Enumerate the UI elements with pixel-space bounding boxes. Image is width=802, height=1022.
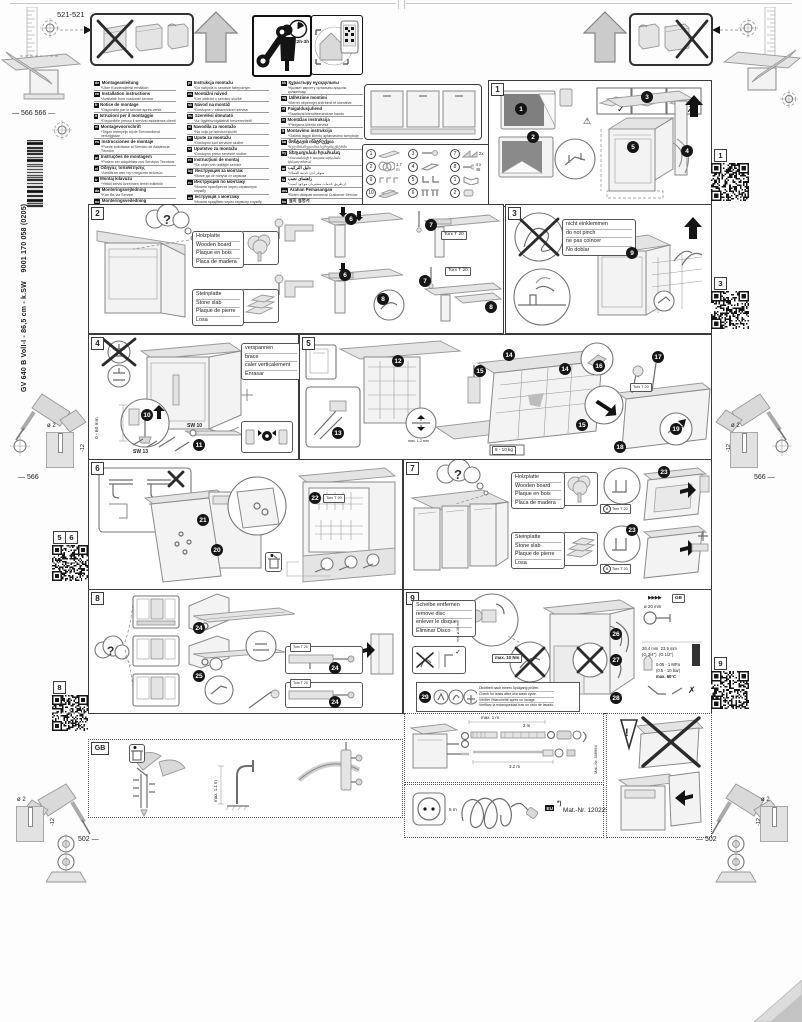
- parts-col-3: 72x 84 x 45 1 2: [450, 147, 486, 205]
- language-note: *Se obţin prin unităţile service: [194, 163, 269, 167]
- panel-4: 4 verspannen brace caler verticalement E…: [88, 334, 299, 460]
- cross-mark: ✗: [688, 686, 696, 696]
- order-number: 9001 170 058 (0205): [21, 204, 28, 273]
- rail-part-icon: [378, 149, 400, 158]
- language-entry: csMontážní návod *Lze obdržet v servisní…: [187, 91, 269, 102]
- do-not-pinch-labels: nicht einklemmen do not pinch ne pas coi…: [562, 219, 636, 256]
- step-badge-20: 20: [211, 544, 223, 556]
- language-title: Montážní návod: [195, 92, 227, 97]
- language-note: *Disponible par le service après-vente: [101, 108, 176, 112]
- language-code-badge: hr: [187, 136, 193, 141]
- install-time-label: <2h-3h: [294, 39, 309, 44]
- screw-part-icon: [420, 149, 440, 158]
- label-es: Enrasar: [245, 371, 297, 379]
- torx-note: 8 Torx T 20: [600, 564, 631, 574]
- language-title: Szerelési útmutató: [195, 114, 233, 119]
- language-note: *Pieejama klientu servisā: [288, 123, 363, 127]
- language-code-badge: de: [94, 81, 100, 86]
- gb-panel-label: GB: [91, 742, 109, 755]
- label-es: Placa de madera: [196, 259, 240, 267]
- min-diameter-label: min. ø 16 mm: [456, 620, 460, 642]
- language-note: *ხელმისაწვდომია სერვისცენტრში: [288, 145, 363, 149]
- language-title: Uputstvo za montažu: [194, 147, 237, 152]
- step-badge-14b: 14: [559, 363, 571, 375]
- page-edge-line: [406, 3, 792, 4]
- gb-panel: GB max. 1.1 m: [88, 739, 403, 818]
- panel-2: 2 ? Holzplatte Wooden boar: [88, 204, 504, 334]
- power-cord-panel: 5 m EU *) Mat.-Nr. 12022522: [404, 784, 604, 838]
- part-item: 3: [408, 147, 448, 160]
- language-code-badge: kk: [281, 81, 287, 86]
- worktop-warning-box: [90, 13, 194, 66]
- panel-2-illustration: ?: [89, 205, 503, 333]
- part-number: 5: [408, 175, 418, 185]
- trash-icon: [130, 745, 144, 762]
- step-badge-19: 19: [670, 423, 682, 435]
- step-badge-23b: 23: [626, 524, 638, 536]
- language-note: *Հասանելի է սպասարկման կենտրոնում: [288, 156, 363, 164]
- qr-tab-6: 6: [65, 531, 78, 544]
- language-note: *Disponibile presso il servizio assisten…: [101, 119, 176, 123]
- step-badge-9: 9: [626, 247, 638, 259]
- cord-length: 5 m: [449, 807, 457, 812]
- drill-diameter-label: ø 2: [17, 797, 26, 803]
- trash-icon: [266, 553, 281, 571]
- language-entry: daMonteringsvejledning *Kan fås via Serv…: [94, 188, 176, 199]
- language-code-badge: da: [94, 188, 100, 193]
- language-code-badge: fr: [94, 103, 99, 108]
- bricks-icon: [242, 290, 278, 322]
- label-fr: enlever le disque: [416, 619, 472, 628]
- language-note: *Available from customer service: [101, 97, 176, 101]
- tree-icon: [242, 232, 278, 264]
- rail-screw-box: Torx T 20: [285, 646, 363, 674]
- drill-diameter-label: ø 2: [731, 423, 740, 429]
- step-badge-24: 24: [193, 622, 205, 634]
- part-ref: 8: [603, 505, 611, 513]
- torx-label: Torx T 20: [441, 231, 467, 240]
- label-en: Stone slab: [196, 300, 240, 309]
- qr-tab-3: 3: [714, 277, 727, 290]
- qr-code-9: [711, 671, 749, 709]
- language-column-3: kkҚұрастыру нұсқаулығы *Қызмет көрсету о…: [281, 80, 363, 204]
- step-badge-10: 10: [141, 409, 153, 421]
- language-note: *Може да се получи от сервиза: [194, 174, 269, 178]
- stone-icon-box: [241, 289, 279, 323]
- arrow-up-icon: [194, 11, 238, 63]
- rail-screw-box: Torx T 20: [285, 682, 363, 708]
- label-de: Scheibe entfernen: [416, 602, 472, 611]
- drill-depth-label: -12: [726, 444, 732, 452]
- language-note: *Az ügyfélszolgálatnál beszerezhető: [194, 119, 269, 123]
- panel-3-number: 3: [508, 207, 521, 220]
- step-badge-24c: 24: [329, 696, 341, 708]
- leak-note-es: Verificar la estanqueidad tras un ciclo …: [479, 703, 554, 708]
- language-code-badge: cs: [187, 92, 193, 97]
- label-es: Losa: [196, 317, 240, 325]
- part-item: 5: [408, 173, 448, 186]
- qr-code-1: [711, 163, 749, 201]
- label-fr: Plaque en bois: [515, 491, 561, 500]
- language-entry: kkҚұрастыру нұсқаулығы *Қызмет көрсету о…: [281, 80, 363, 95]
- label-de: Steinplatte: [515, 534, 561, 543]
- language-code-badge: pt: [94, 155, 99, 160]
- panel-9: 9 Scheibe entfernen remove disc enlever …: [403, 589, 712, 714]
- step-badge-5: 5: [627, 141, 639, 153]
- footnote-star: *): [557, 801, 561, 807]
- language-entry: enInstallation instructions *Available f…: [94, 91, 176, 102]
- language-title: Інструкція з монтажу: [195, 195, 240, 200]
- language-entry: lvMontāžas instrukcija *Pieejama klientu…: [281, 117, 363, 128]
- part-item: 10: [366, 186, 406, 199]
- language-entry: trMontaj kılavuzu *Yetkili servis üzerin…: [94, 177, 176, 188]
- part-number: 2: [366, 162, 376, 172]
- language-title: Montagevoorschrift: [101, 125, 141, 130]
- panel-1: 1 ✓ ✗ ⚠ 1 2 3 4 5: [488, 80, 712, 207]
- language-code-badge: el: [94, 166, 99, 171]
- torx-value: Torx T 20: [612, 567, 628, 571]
- language-entry: ruИнструкция по монтажу *Можно приобрест…: [187, 180, 269, 195]
- step-badge-11: 11: [193, 439, 205, 451]
- hinge-dim: 502 —: [78, 836, 99, 843]
- registration-mark: [404, 0, 405, 9]
- label-en: Stone slab: [515, 543, 561, 552]
- language-entry: kaმონტაჟის ინსტრუქცია *ხელმისაწვდომია სე…: [281, 139, 363, 150]
- panel-8: 8 ? 24 25 Torx T 20 24 Torx T 20: [88, 589, 403, 714]
- qr-tab-1: 1: [714, 149, 727, 162]
- angle-part-icon: [462, 175, 480, 185]
- language-entry: nlMontagevoorschrift *Tegen meerprijs bi…: [94, 124, 176, 139]
- panel-1-illustration: [489, 81, 711, 206]
- leak-check-text: Dichtheit nach einem Spülgang prüfen. Ch…: [479, 686, 554, 708]
- part-number: 1: [366, 149, 376, 159]
- dimension-left: — 566 566 —: [12, 110, 55, 117]
- part-number: 3: [408, 149, 418, 159]
- language-code-badge: uk: [187, 195, 193, 200]
- step-badge-17: 17: [652, 351, 664, 363]
- svg-text:?: ?: [107, 644, 114, 658]
- strip-part-icon: [378, 188, 400, 198]
- panel-1-number: 1: [491, 83, 504, 96]
- step-badge-22: 22: [309, 492, 321, 504]
- drill-depth-label: -12: [50, 818, 56, 826]
- bracket-part-icon: [420, 174, 442, 185]
- language-code-badge: sr: [187, 147, 192, 152]
- thread-sizes: 26.4 mm 23.9 mm: [642, 646, 677, 651]
- language-entry: hrUpute za montažu *Dostupno kod servisn…: [187, 135, 269, 146]
- stone-slab-labels: Steinplatte Stone slab Plaque de pierre …: [192, 289, 244, 326]
- language-code-badge: nl: [94, 125, 99, 130]
- part-item: 4: [408, 160, 448, 173]
- svg-text:?: ?: [454, 467, 462, 482]
- language-entry: arدليل التركيب *متوفر لدى خدمة العملاء: [281, 166, 363, 177]
- label-en: brace: [245, 354, 297, 363]
- scan-app-box: [311, 15, 363, 75]
- gb-arrows: ▶▶▶▶: [648, 595, 661, 601]
- weight-value: 5 - 10 kg: [495, 447, 513, 452]
- language-code-badge: tr: [94, 177, 99, 182]
- drill-board-detail: [760, 806, 788, 842]
- foil-part-icon: [420, 162, 440, 171]
- qr-tab-9: 9: [714, 657, 727, 670]
- language-title: Arahan Pemasangan: [290, 188, 333, 193]
- part-note: 1.7 m: [396, 162, 406, 172]
- language-note: *Galima įsigyti klientų aptarnavimo tarn…: [288, 134, 363, 138]
- thread-2: 23.9 mm: [661, 646, 677, 651]
- language-note: *Do nabycia w serwisie fabrycznym: [194, 86, 269, 90]
- language-title: Инструкция за монтаж: [195, 169, 243, 174]
- language-code-badge: pl: [187, 81, 192, 86]
- language-code-badge: ka: [281, 140, 287, 145]
- weight-label: 5 - 10 kg: [492, 446, 516, 455]
- level-adjust-box: [241, 421, 293, 453]
- label-de: Steinplatte: [196, 291, 240, 300]
- label-es: No doblar: [566, 247, 632, 255]
- label-de: nicht einklemmen: [566, 221, 632, 230]
- wooden-board-labels: Holzplatte Wooden board Plaque en bois P…: [192, 231, 244, 268]
- step-badge-26: 26: [610, 628, 622, 640]
- language-title: Instrukcja montażu: [194, 81, 233, 86]
- language-note: *از طریق خدمات مشتریان موجود است: [288, 182, 363, 186]
- language-code-badge: ar: [281, 166, 286, 171]
- part-item: 6: [408, 186, 448, 199]
- max-temp: max. 60°C: [656, 674, 676, 679]
- step-badge-24b: 24: [329, 662, 341, 674]
- language-entry: srUputstvo za montažu *Dostupno preko se…: [187, 146, 269, 157]
- step-badge-15b: 15: [576, 419, 588, 431]
- label-de: Holzplatte: [196, 233, 240, 242]
- stone-slab-labels: Steinplatte Stone slab Plaque de pierre …: [511, 532, 565, 569]
- qr-code-5-6: [52, 545, 88, 581]
- check-mark: ✓: [455, 648, 461, 656]
- drill-board-detail: [730, 432, 758, 468]
- step-badge-14: 14: [503, 349, 515, 361]
- language-entry: elΟδηγίες τοποθέτησης *Διατίθεται από τη…: [94, 166, 176, 177]
- panel-8-number: 8: [91, 592, 104, 605]
- panel-5-number: 5: [302, 337, 315, 350]
- label-en: Wooden board: [515, 483, 561, 492]
- label-es: Losa: [515, 560, 561, 568]
- part-number: 7: [450, 149, 460, 159]
- language-note: *Saadaval klienditeeninduse kaudu: [288, 112, 363, 116]
- phone-scan-icon: [312, 16, 362, 74]
- language-note: *Merret nëpërmjet shërbimit të klientëve: [288, 101, 363, 105]
- language-entry: etPaigaldusjuhend *Saadaval klienditeeni…: [281, 106, 363, 117]
- hinge-dim-value: 502: [78, 836, 90, 843]
- language-title: Montageanleitung: [102, 81, 139, 86]
- language-title: Құрастыру нұсқаулығы: [289, 81, 339, 86]
- panel-6-number: 6: [91, 462, 104, 475]
- language-column-2: plInstrukcja montażu *Do nabycia w serwi…: [187, 80, 269, 204]
- side-hole-value: 566: [754, 474, 766, 481]
- dispose-box: [265, 552, 282, 572]
- side-hole-value: 566: [27, 474, 39, 481]
- parts-col-2: 3 4 5 6: [408, 147, 448, 205]
- chipboard-icons: [92, 15, 192, 64]
- drill-diameter-label: ø 2: [47, 423, 56, 429]
- gap-label: max. 1.2 mm: [408, 439, 429, 443]
- language-note: *Podem ser adquiridas nos Serviços Técni…: [101, 160, 176, 164]
- step-badge-6b: 6: [339, 269, 351, 281]
- language-title: Инструкция по монтажу: [194, 180, 245, 185]
- thread-type-2: (G 1/2"): [659, 652, 674, 657]
- language-code-badge: lv: [281, 118, 286, 123]
- label-fr: ne pas coincer: [566, 238, 632, 247]
- language-code-badge: hu: [187, 114, 193, 119]
- hose-length-32m: 3.2 m: [509, 764, 520, 769]
- sw13-label: SW 13: [133, 449, 148, 455]
- step-badge-8b: 8: [485, 301, 497, 313]
- language-code-badge: lt: [281, 129, 285, 134]
- language-note: *Yetkili servis üzerinden temin edilebil…: [101, 182, 176, 186]
- part-item: 72x: [450, 147, 486, 160]
- person-wrench-icon: [254, 17, 310, 75]
- language-entry: hyՏեղադրման հրահանգ *Հասանելի է սպասարկմ…: [281, 150, 363, 165]
- language-title: Montaj kılavuzu: [100, 177, 132, 182]
- label-fr: caler verticalement: [245, 362, 297, 371]
- language-title: Udhëzime montimi: [289, 96, 327, 101]
- standpipe-height-label: max. 1.1 m: [213, 780, 218, 802]
- language-title: Montavimo instrukcija: [287, 129, 332, 134]
- language-entry: skNávod na montáž *Dostupné v zákaznícko…: [187, 102, 269, 113]
- panel-6-illustration: [89, 460, 402, 589]
- language-title: Monteringsvejledning: [102, 188, 146, 193]
- step-badge-15: 15: [474, 365, 486, 377]
- remove-disc-labels: Scheibe entfernen remove disc enlever le…: [412, 600, 476, 637]
- step-badge-12: 12: [392, 355, 404, 367]
- crosshair-icon: [780, 90, 798, 108]
- language-note: *Boleh didapati menerusi Customer Servic…: [288, 193, 363, 197]
- hose-do-dont-box: ✓: [412, 646, 466, 674]
- part-item: 2: [450, 186, 486, 199]
- language-entry: faراهنمای نصب *از طریق خدمات مشتریان موج…: [281, 177, 363, 188]
- language-title: Տեղադրման հրահանգ: [289, 151, 340, 156]
- step-badge-16: 16: [593, 360, 605, 372]
- language-entry: esInstrucciones de montaje *Puede solici…: [94, 139, 176, 154]
- panel-3: 3 nicht einklemmen do not pinch ne pas c…: [505, 204, 712, 334]
- step-badge-7b: 7: [419, 275, 431, 287]
- svg-text:?: ?: [163, 212, 171, 227]
- wood-icon-box: [241, 231, 279, 265]
- label-es: Placa de madera: [515, 500, 561, 508]
- torx-label: Torx T 20: [630, 383, 652, 392]
- crosshair-icon: [52, 120, 72, 140]
- language-title: Installation instructions: [102, 92, 150, 97]
- label-de: Holzplatte: [515, 474, 561, 483]
- label-en: Wooden board: [196, 242, 240, 251]
- barcode: [27, 140, 43, 208]
- language-code-badge: fa: [281, 177, 286, 182]
- part-item: 9: [366, 173, 406, 186]
- language-entry: sqUdhëzime montimi *Merret nëpërmjet shë…: [281, 95, 363, 106]
- language-entry: ltMontavimo instrukcija *Galima įsigyti …: [281, 128, 363, 139]
- language-title: Návod na montáž: [195, 103, 231, 108]
- countertop-pencil-drawing: [0, 34, 82, 100]
- language-code-badge: it: [94, 114, 98, 119]
- pressure-spec-bar: (0.5 - 10 bar): [656, 668, 680, 673]
- panel-5: 5 12 13 14 15 14 15 16 17 18 19 max. 1.2…: [299, 334, 712, 460]
- language-code-badge: sl: [187, 125, 192, 130]
- language-title: მონტაჟის ინსტრუქცია: [289, 140, 334, 145]
- language-title: Istruzioni per il montaggio: [100, 114, 154, 119]
- part-item: 84 x 45: [450, 160, 486, 173]
- language-entry: itIstruzioni per il montaggio *Disponibi…: [94, 113, 176, 124]
- drill-board-detail: [16, 806, 44, 842]
- panel-4-number: 4: [91, 337, 104, 350]
- label-de: verspannen: [245, 345, 297, 354]
- language-title: Notice de montage: [100, 103, 138, 108]
- language-title: Instrucţiuni de montaj: [194, 158, 239, 163]
- brace-labels: verspannen brace caler verticalement Enr…: [241, 343, 301, 380]
- part-number: 9: [366, 175, 376, 185]
- part-number: 1: [450, 175, 460, 185]
- language-note: *Puede solicitarse al Servicio de Asiste…: [101, 145, 176, 153]
- part-item: 1: [366, 147, 406, 160]
- bricks-icon: [563, 533, 597, 565]
- drill-depth-label: -12: [80, 444, 86, 452]
- side-hole-dim: — 566: [18, 474, 39, 481]
- language-code-badge: ru: [187, 180, 193, 185]
- hinge-dim-value: 502: [705, 836, 717, 843]
- language-entry: roInstrucţiuni de montaj *Se obţin prin …: [187, 157, 269, 168]
- worktop-warning-box-right: [629, 13, 713, 66]
- hose-mat-number: Mat.-Nr. 346964: [593, 745, 598, 774]
- step-badge-7: 7: [425, 219, 437, 231]
- part-number: 10: [366, 188, 376, 198]
- language-note: *Dostupno preko servisne službe: [194, 152, 269, 156]
- language-note: *Über Kundendienst erhältlich: [101, 86, 176, 90]
- hose-lengths-panel: max. 1 m 2 m 3.2 m Mat.-Nr. 346964: [404, 713, 604, 783]
- language-column-1: deMontageanleitung *Über Kundendienst er…: [94, 80, 176, 204]
- label-fr: Plaque en bois: [196, 250, 240, 259]
- part-number: 4: [408, 162, 418, 172]
- language-title: Instruções de montagem: [101, 155, 152, 160]
- chipboard-icons: [631, 15, 711, 64]
- language-entry: slNavodila za montažo *Na voljo pri serv…: [187, 124, 269, 135]
- warning-icon: ⚠: [583, 117, 591, 127]
- cap-part-icon: [462, 188, 476, 198]
- language-code-badge: en: [94, 92, 100, 97]
- torx-label: Torx T 20: [290, 679, 311, 688]
- step-badge-2: 2: [527, 131, 539, 143]
- check-mark: ✓: [617, 105, 625, 115]
- tools-time-box: <2h-3h: [252, 15, 312, 77]
- panel-2-number: 2: [91, 207, 104, 220]
- part-note: 4 x 45: [476, 162, 486, 172]
- dispose-box: [129, 744, 145, 763]
- language-note: *Kan fås via Service: [101, 193, 176, 197]
- step-badge-23: 23: [658, 466, 670, 478]
- part-number: 8: [450, 162, 460, 172]
- kitchen-cabinet-preview: [364, 84, 482, 140]
- hose-lengths-illustration: [405, 714, 603, 782]
- eu-badge: EU: [545, 805, 554, 811]
- leak-check-strip: 29 Dichtheit nach einem Spülgang prüfen.…: [416, 682, 580, 712]
- side-hole-dim: 566 —: [754, 474, 775, 481]
- language-note: *Tegen meerprijs bij de Servicedienst ve…: [101, 130, 176, 138]
- torx-label: Torx T 20: [323, 494, 345, 503]
- arrow-up-icon: [583, 11, 627, 63]
- step-badge-25: 25: [193, 670, 205, 682]
- language-note: *Dostupné v zákazníckom servise: [194, 108, 269, 112]
- step-badge-6: 6: [345, 213, 357, 225]
- language-title: Οδηγίες τοποθέτησης: [101, 166, 145, 171]
- language-entry: plInstrukcja montażu *Do nabycia w serwi…: [187, 80, 269, 91]
- foot-range-label: 0 - 60 mm: [95, 417, 100, 439]
- drill-diameter-label: ø 2: [761, 797, 770, 803]
- page-fold-corner: [754, 980, 802, 1022]
- thread-types: (G 3/4") (G 1/2"): [642, 652, 673, 657]
